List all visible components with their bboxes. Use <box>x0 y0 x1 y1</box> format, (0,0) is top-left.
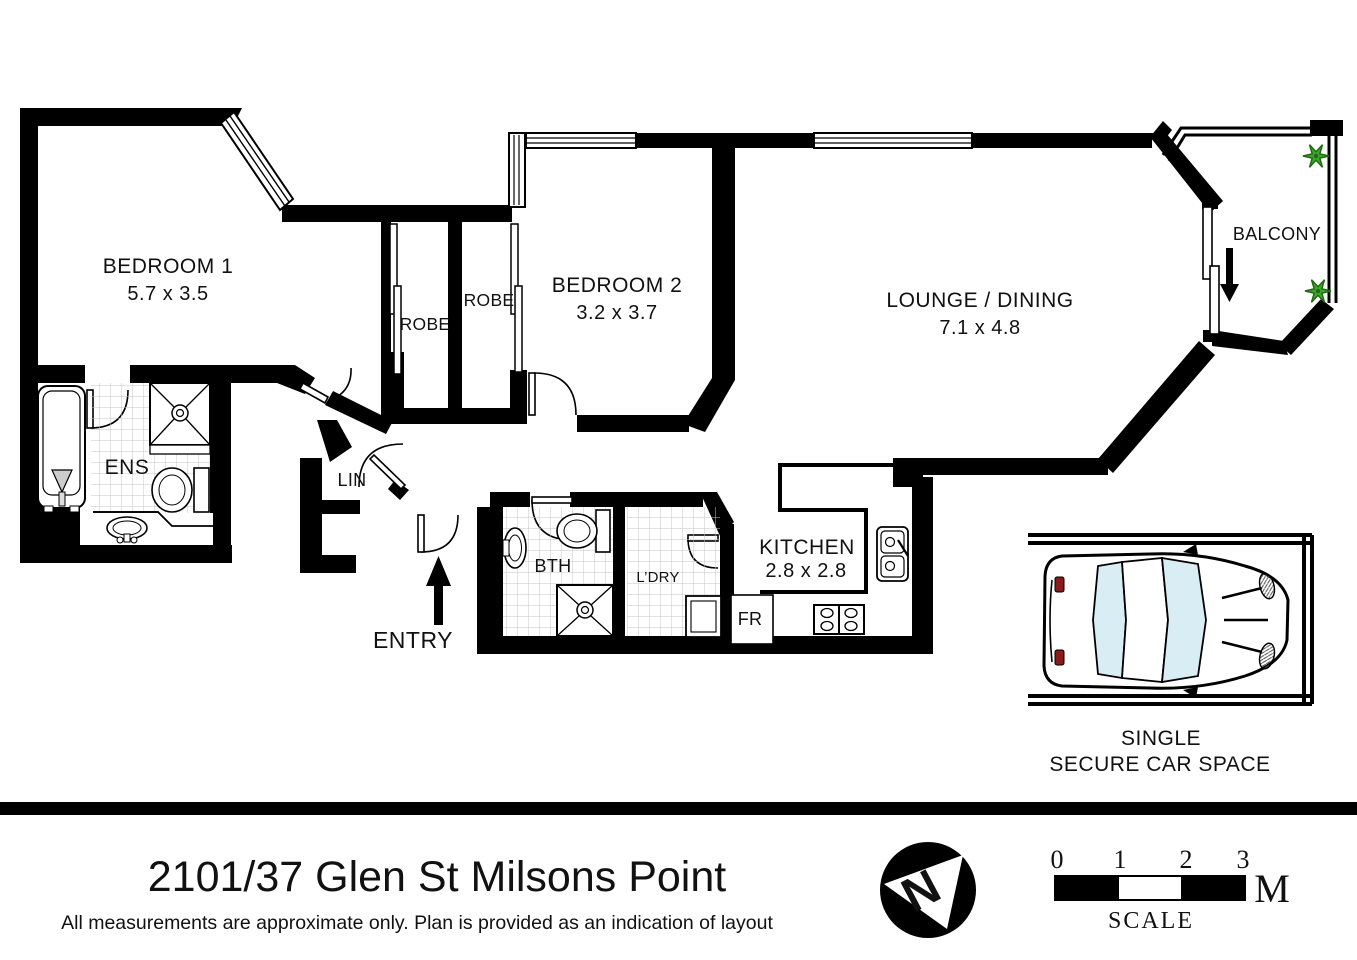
plant-icon <box>1305 280 1331 303</box>
linen-label: LIN <box>338 470 367 490</box>
laundry-label: L’DRY <box>636 569 679 586</box>
bedroom2-door <box>529 373 576 415</box>
floorplan-page: BEDROOM 1 5.7 x 3.5 ROBE ROBE BEDROOM 2 … <box>0 0 1357 960</box>
car-space-label-line2: SECURE CAR SPACE <box>1049 753 1270 776</box>
ensuite-label: ENS <box>105 456 150 479</box>
bedroom2-label: BEDROOM 2 <box>552 274 683 297</box>
bedroom2-top-window <box>526 133 636 148</box>
scale-tick-1: 1 <box>1114 845 1127 874</box>
windows <box>221 112 972 210</box>
divider-bar <box>0 802 1357 815</box>
balcony-arrow-icon <box>1220 248 1239 302</box>
balcony-sliding-door <box>1203 207 1219 334</box>
north-arrow-icon: N <box>880 842 976 938</box>
car-space-label-line1: SINGLE <box>1121 727 1201 750</box>
scale-tick-3: 3 <box>1237 845 1250 874</box>
entry-label: ENTRY <box>373 627 453 653</box>
lounge-label: LOUNGE / DINING <box>886 289 1073 312</box>
scale-tick-2: 2 <box>1180 845 1193 874</box>
car-space <box>1028 535 1312 704</box>
bedroom1-label: BEDROOM 1 <box>103 255 234 278</box>
ensuite-toilet <box>152 468 209 512</box>
bathtub <box>38 386 85 512</box>
bedroom1-dims: 5.7 x 3.5 <box>127 283 208 305</box>
kitchen-label: KITCHEN <box>759 536 855 559</box>
bedroom2-dims: 3.2 x 3.7 <box>576 302 657 324</box>
bathroom-sink <box>503 528 526 568</box>
cooktop <box>814 605 864 634</box>
disclaimer: All measurements are approximate only. P… <box>61 912 773 934</box>
kitchen-sink <box>877 527 908 581</box>
entry-arrow-icon <box>426 556 451 625</box>
robe2-label: ROBE <box>464 290 515 310</box>
robe1-label: ROBE <box>400 314 451 334</box>
scale-tick-0: 0 <box>1051 845 1064 874</box>
car-illustration <box>1044 544 1288 698</box>
floorplan-canvas: BEDROOM 1 5.7 x 3.5 ROBE ROBE BEDROOM 2 … <box>0 0 1357 960</box>
scale-word: SCALE <box>1108 908 1194 934</box>
page-title: 2101/37 Glen St Milsons Point <box>148 853 726 901</box>
entry-door <box>418 515 458 552</box>
fridge-label: FR <box>738 609 763 629</box>
kitchen-dims: 2.8 x 2.8 <box>765 560 846 582</box>
scale-bar: 0 1 2 3 M SCALE <box>1051 845 1290 934</box>
scale-unit: M <box>1254 866 1290 911</box>
ensuite-shower <box>150 383 210 454</box>
plant-icon <box>1303 145 1329 168</box>
bedroom1-diagonal-window <box>221 112 293 210</box>
bathroom-label: BTH <box>535 556 572 576</box>
bathroom-shower <box>557 585 613 636</box>
bedroom2-left-window <box>509 133 525 207</box>
washing-machine <box>686 596 721 637</box>
lounge-dims: 7.1 x 4.8 <box>939 317 1020 339</box>
ensuite-vanity <box>93 512 213 545</box>
balcony-label: BALCONY <box>1233 224 1321 244</box>
lounge-top-window <box>814 133 972 148</box>
